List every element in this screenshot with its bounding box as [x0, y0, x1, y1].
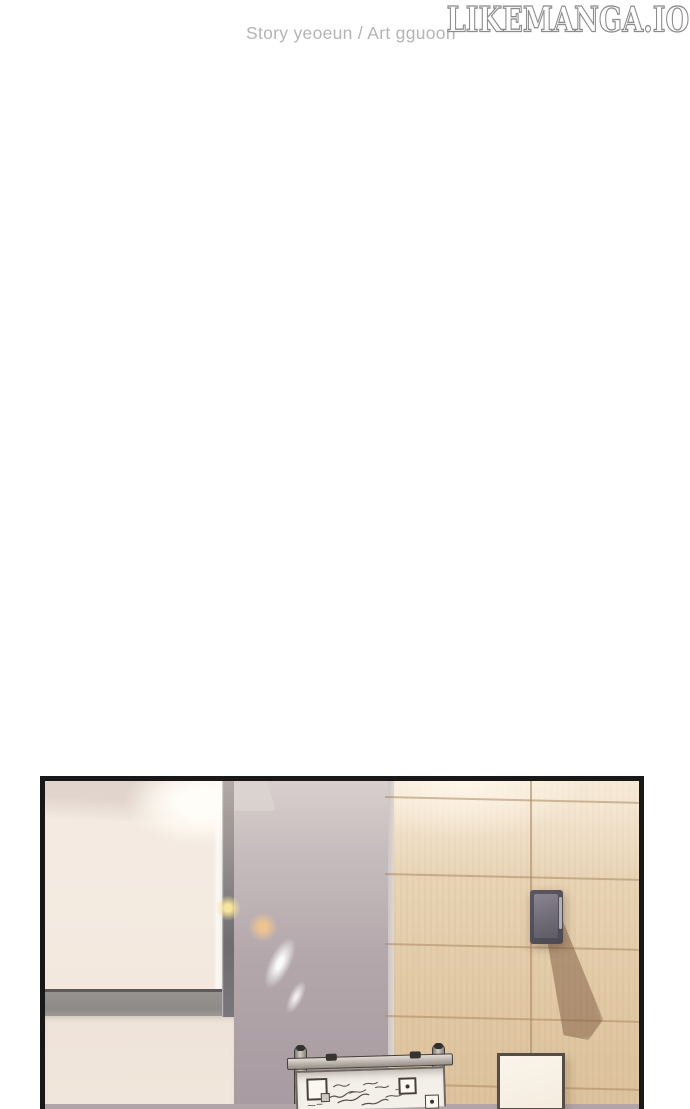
- post-cap: [434, 1043, 443, 1049]
- lens-flare-yellow: [215, 895, 241, 921]
- post-cap: [296, 1045, 305, 1051]
- board-clip: [410, 1051, 421, 1058]
- wall-speaker: [530, 890, 563, 944]
- wall-below-window: [45, 1016, 234, 1104]
- board-clip: [326, 1054, 337, 1061]
- manga-panel: [40, 776, 644, 1109]
- magnet-dot: [430, 1100, 434, 1104]
- lens-flare-orange: [248, 912, 278, 942]
- sticky-note: [398, 1077, 417, 1095]
- window-frame-bottom-bar: [45, 989, 238, 1016]
- magnet-dot: [405, 1084, 409, 1088]
- whiteboard-surface: [295, 1066, 446, 1109]
- flipchart-whiteboard: [285, 1043, 455, 1104]
- sticky-note-fold: [321, 1093, 330, 1102]
- paper-sheet-on-wall: [497, 1053, 565, 1109]
- sticky-note: [306, 1078, 328, 1101]
- site-logo: LikeManga.Io: [446, 3, 689, 38]
- credits-text: Story yeoeun / Art gguoon: [246, 23, 456, 44]
- speaker-highlight: [559, 897, 562, 929]
- sticky-note: [425, 1094, 439, 1108]
- speaker-front-face: [534, 894, 558, 938]
